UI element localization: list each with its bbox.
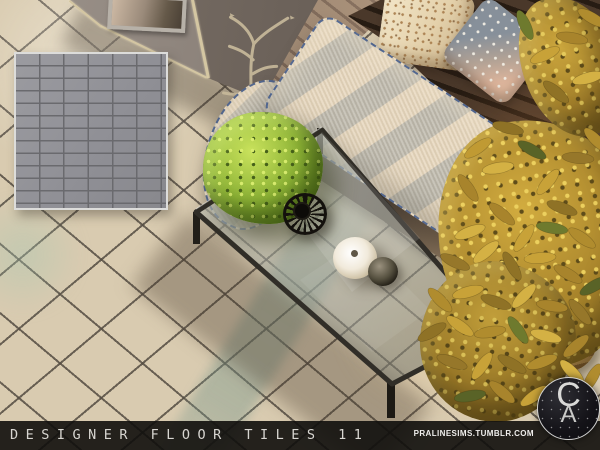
tile-swatch: [14, 52, 168, 210]
picture-frame: [107, 0, 187, 33]
black-wire-vase: [283, 193, 327, 235]
cc-title: DESIGNER FLOOR TILES 11: [10, 421, 369, 450]
dark-bowl: [368, 257, 398, 286]
cc-preview-render: DESIGNER FLOOR TILES 11 PRALINESIMS.TUMB…: [0, 0, 600, 450]
creator-site-url: PRALINESIMS.TUMBLR.COM: [414, 429, 534, 438]
pralinesims-logo: C A: [537, 377, 600, 440]
logo-letter-a: A: [538, 400, 599, 430]
